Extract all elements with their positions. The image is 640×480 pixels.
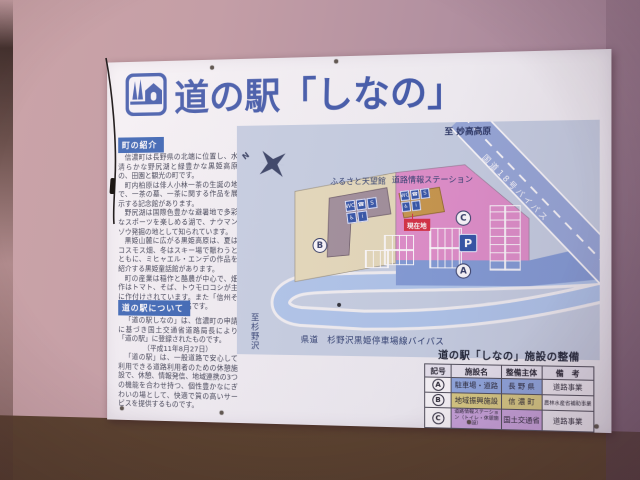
note: 道路事業: [542, 410, 594, 432]
wheelchair-icon: ♿: [346, 212, 357, 224]
shop-icon: S: [366, 197, 377, 209]
col-header-facility: 施設名: [452, 364, 502, 378]
facilities-table-title: 道の駅「しなの」施設の整備: [424, 346, 594, 364]
bolt: [594, 424, 598, 428]
bolt: [120, 406, 124, 410]
section-heading-about-michinoeki: 道の駅について: [118, 300, 190, 316]
paragraph: 信濃町は長野県の北端に位置し、水清らかな野尻湖と緑豊かな黒姫高原の、田園と観光の…: [118, 151, 238, 180]
toilet-icon: WC: [345, 200, 356, 212]
wheelchair-icon: ♿: [401, 201, 411, 212]
paragraph: 「道の駅しなの」は、信濃町の申請に基づき国土交通省道路局長により「道の駅」に登録…: [118, 315, 238, 345]
label-prefroad-bypass: 県道 杉野沢黒姫停車場線バイパス: [301, 333, 445, 347]
map-marker-b: B: [313, 238, 328, 253]
parking-stalls: [429, 228, 462, 269]
table-row: C 道路情報ステーション（トイレ・休憩施設） 国土交通省 道路事業: [425, 407, 594, 432]
note: 道路事業: [542, 379, 594, 396]
phone-icon: ☎: [410, 189, 420, 200]
col-header-symbol: 記号: [425, 364, 452, 378]
info-icon: i: [357, 210, 368, 222]
sign-title: 道の駅「しなの」: [174, 61, 465, 121]
paragraph: 町内柏原は俳人小林一茶の生誕の地で、一茶の墓、一茶に関する作品を展示する記念館が…: [118, 180, 238, 209]
furusato-building-icons: WC ☎ S ♿ i: [345, 197, 379, 224]
site-map: N 至 妙高高原 国道18号バイパス ふるさと天望館 道路情報ステーション 県道…: [237, 120, 600, 360]
paragraph: 野尻湖は国際色豊かな避暑地で多彩なスポーツを楽しめる湖で、ナウマンゾウ発掘の地と…: [118, 208, 238, 236]
parking-stalls: [490, 205, 521, 271]
sign-content: 道の駅「しなの」 町の紹介 信濃町は長野県の北端に位置し、水清らかな野尻湖と緑豊…: [107, 49, 611, 433]
agency: 国土交通省: [501, 409, 541, 431]
paragraph: 黒姫山麓に広がる黒姫高原は、夏はコスモス畑、冬はスキー場で賑わうとともに、ミヒャ…: [118, 236, 238, 274]
map-base-drawing: [237, 120, 600, 360]
facilities-table-block: 道の駅「しなの」施設の整備 記号 施設名 整備主体 備 考 A 駐車場・道路 長…: [424, 346, 594, 432]
info-station-building-icons: WC ☎ S ♿ i: [400, 188, 431, 212]
facility-name: 駐車場・道路: [452, 377, 502, 393]
bolt: [220, 411, 224, 415]
about-michinoeki-text: 「道の駅しなの」は、信濃町の申請に基づき国土交通省道路局長により「道の駅」に登録…: [118, 315, 238, 411]
facility-name: 地域振興施設: [452, 393, 502, 409]
map-marker-a: A: [456, 263, 471, 278]
agency: 信 濃 町: [501, 394, 541, 410]
facility-name: 道路情報ステーション（トイレ・休憩施設）: [452, 408, 502, 430]
road-dot: [337, 303, 341, 307]
note: 農林水産省補助事業: [542, 395, 594, 412]
paragraph: 「道の駅」は、一般道路で安心して利用できる道路利用者のための休憩施設で、休憩、情…: [118, 352, 238, 411]
col-header-agency: 整備主体: [501, 365, 541, 379]
photo-of-signboard: 道の駅「しなの」 町の紹介 信濃町は長野県の北端に位置し、水清らかな野尻湖と緑豊…: [0, 0, 640, 480]
section-heading-town-intro: 町の紹介: [118, 137, 164, 153]
parking-icon: P: [459, 234, 477, 252]
col-header-note: 備 考: [542, 366, 594, 380]
label-road-info-station: 道路情報ステーション: [392, 174, 473, 186]
symbol-a: A: [432, 379, 444, 391]
roadside-station-signboard: 道の駅「しなの」 町の紹介 信濃町は長野県の北端に位置し、水清らかな野尻湖と緑豊…: [107, 49, 611, 433]
symbol-c: C: [432, 412, 444, 424]
label-to-suginosawa: 至杉野沢: [248, 313, 260, 351]
town-intro-text: 信濃町は長野県の北端に位置し、水清らかな野尻湖と緑豊かな黒姫高原の、田園と観光の…: [118, 151, 238, 311]
phone-icon: ☎: [356, 198, 367, 210]
current-location-badge: 現在地: [404, 219, 430, 231]
agency: 長 野 県: [501, 378, 541, 394]
label-furusato-tenbokan: ふるさと天望館: [330, 176, 386, 187]
shop-icon: S: [420, 188, 430, 199]
toilet-icon: WC: [400, 190, 410, 201]
bolt: [467, 420, 471, 424]
wall-left-shadow: [0, 0, 13, 480]
facilities-table: 記号 施設名 整備主体 備 考 A 駐車場・道路 長 野 県 道路事業 B 地域…: [424, 363, 594, 432]
map-marker-c: C: [456, 210, 471, 225]
michinoeki-logo-icon: [126, 73, 167, 117]
parking-stalls: [384, 235, 414, 265]
info-icon: i: [411, 200, 421, 211]
symbol-b: B: [432, 394, 444, 406]
bolt: [334, 59, 338, 63]
label-to-myoko: 至 妙高高原: [444, 125, 491, 138]
